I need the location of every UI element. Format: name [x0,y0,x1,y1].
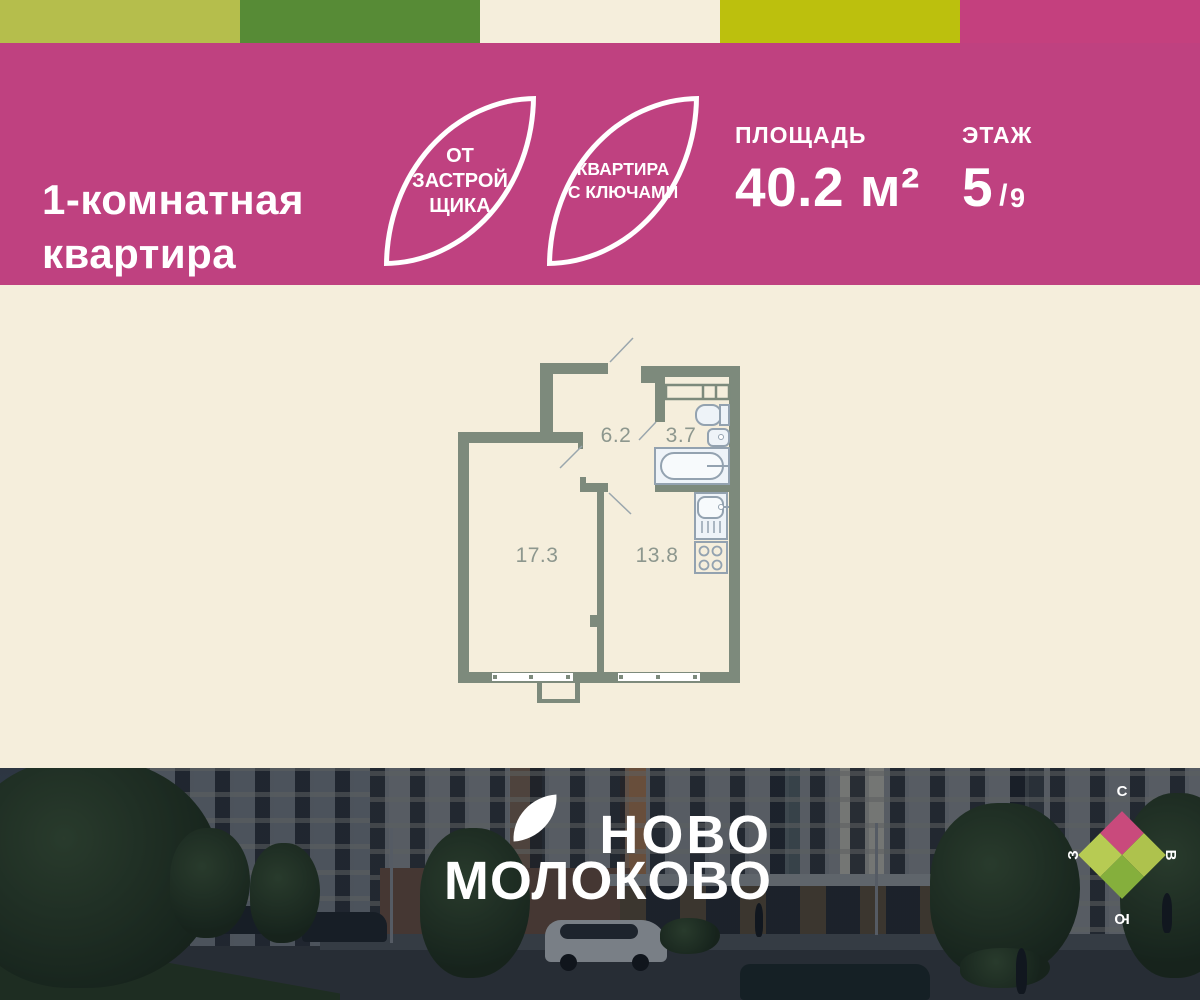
title-line-1: 1-комнатная [42,173,304,227]
floor-number: 5 [962,155,993,219]
page-title: 1-комнатная квартира [42,173,304,281]
badge-keys-line2: С КЛЮЧАМИ [568,181,678,204]
kitchen-door-swing [609,493,631,514]
entrance-door-swing [610,338,633,362]
wall-divider-vertical [597,492,604,672]
header-band: 1-комнатная квартира ОТ ЗАСТРОЙ ЩИКА КВА… [0,43,1200,285]
wall-hall-left [540,363,553,443]
wall-divider-stub [580,483,608,492]
badge-with-keys: КВАРТИРА С КЛЮЧАМИ [547,96,699,266]
room-label-kitchen: 13.8 [627,544,687,568]
bathtub [655,448,729,484]
wall-bathroom-left [655,383,665,422]
badge-from-developer: ОТ ЗАСТРОЙ ЩИКА [384,96,536,266]
badge-keys-line1: КВАРТИРА [568,158,678,181]
kitchen-sink [695,493,729,539]
room-label-bathroom: 3.7 [651,424,711,448]
room-label-living: 17.3 [507,544,567,568]
closet [666,385,729,399]
living-window [492,673,573,681]
badge-with-keys-text: КВАРТИРА С КЛЮЧАМИ [568,158,678,204]
strip-block-2 [240,0,480,43]
wall-right-outer [729,366,740,683]
floorplan-drawing [440,320,760,720]
badge-from-developer-text: ОТ ЗАСТРОЙ ЩИКА [412,144,508,219]
wall-left-outer [458,432,469,683]
floorplan-canvas: 6.2 3.7 17.3 13.8 [440,320,760,720]
room-label-hallway: 6.2 [586,424,646,448]
wall-entrance-stub [641,366,665,383]
compass-letter-south: Ю [1112,908,1132,928]
title-line-2: квартира [42,227,304,281]
floorplan-section: 6.2 3.7 17.3 13.8 [0,285,1200,768]
compass-letter-north: С [1112,782,1132,802]
kitchen-window [618,673,700,681]
badge-dev-line3: ЩИКА [412,194,508,219]
floor-total: 9 [1010,183,1026,214]
badge-dev-line1: ОТ [412,144,508,169]
living-door-swing [560,446,582,468]
area-label: ПЛОЩАДЬ [735,122,866,149]
wall-living-top [458,432,583,443]
strip-block-4 [720,0,960,43]
strip-block-5 [960,0,1200,43]
floor-separator: / [999,179,1008,213]
brand-name-line2: МОЛОКОВО [444,850,772,912]
compass-letter-west: З [1064,845,1084,865]
area-value: 40.2 м² [735,155,920,219]
strip-block-3 [480,0,720,43]
compass-letter-east: В [1160,845,1180,865]
top-color-strip [0,0,1200,43]
toilet [696,405,729,425]
badge-dev-line2: ЗАСТРОЙ [412,169,508,194]
floor-value: 5 / 9 [962,155,1025,219]
stove [695,542,727,573]
wall-divider-jog [590,615,597,627]
strip-block-1 [0,0,240,43]
floor-label: ЭТАЖ [962,122,1032,149]
balcony [537,683,580,703]
bathroom-sink [708,429,729,446]
footer-photo: НОВО МОЛОКОВО С В Ю З [0,768,1200,1000]
listing-poster: { "palette": { "strip": ["#b5be4c", "#57… [0,0,1200,1000]
